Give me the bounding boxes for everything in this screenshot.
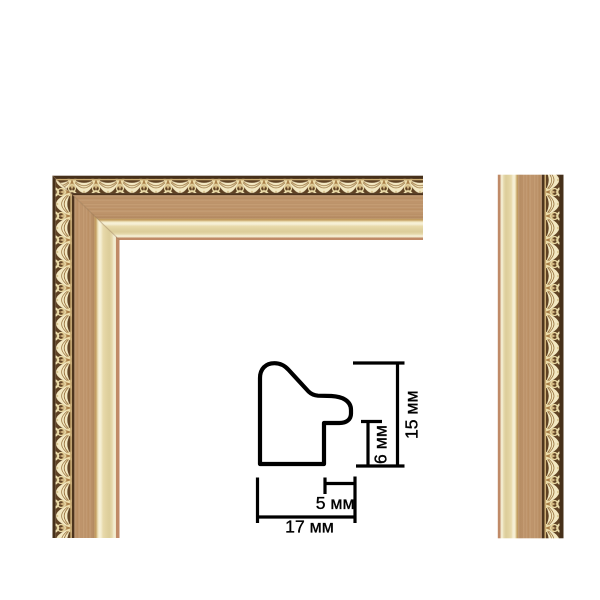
svg-text:5 мм: 5 мм xyxy=(316,493,355,513)
svg-text:6 мм: 6 мм xyxy=(371,425,391,464)
svg-text:17 мм: 17 мм xyxy=(285,516,334,536)
svg-text:15 мм: 15 мм xyxy=(402,390,422,439)
